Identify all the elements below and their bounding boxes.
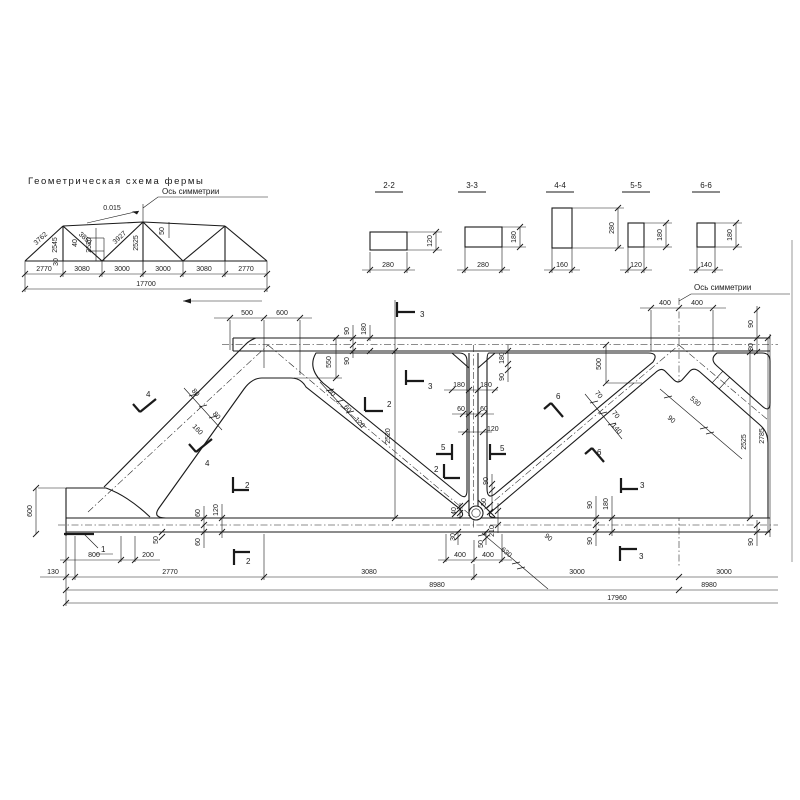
flag-2a: 2 [387, 400, 392, 409]
section-2-2-label: 2-2 [383, 181, 395, 190]
dim-gusset-500: 500 [596, 358, 603, 370]
scheme-slope-line [87, 211, 139, 223]
dim-600-left: 600 [27, 505, 34, 517]
section-5-5-label: 5-5 [630, 181, 642, 190]
dim-17960: 17960 [607, 595, 627, 602]
drawing-canvas: Геометрическая схема фермы Ось симметрии… [0, 0, 800, 800]
dim-n2-50: 50 [478, 540, 485, 548]
scheme-slope-arrow [132, 211, 139, 215]
section-5-5-shape [628, 223, 644, 247]
section-3-3: 3-3 280 180 [457, 181, 526, 273]
flag-2c: 2 [245, 481, 250, 490]
dim-500: 500 [241, 310, 253, 317]
dim-ed-80a: 80 [190, 388, 201, 399]
dim-right-90: 90 [748, 320, 755, 328]
scheme-span-6: 2770 [238, 266, 254, 273]
flag-6b: 6 [597, 448, 602, 457]
dim-bcr-180: 180 [603, 498, 610, 510]
flag-2b: 2 [434, 465, 439, 474]
cross-sections: 2-2 280 120 3-3 280 180 4-4 [362, 181, 742, 273]
node-hole-outer [469, 506, 483, 520]
scheme-span-3: 3000 [114, 266, 130, 273]
dim-200: 200 [142, 552, 154, 559]
dim-bcr-90a: 90 [587, 501, 594, 509]
section-5-5-width: 120 [630, 262, 642, 269]
section-2-2: 2-2 280 120 [362, 181, 442, 273]
dim-8980a: 8980 [429, 582, 445, 589]
dim-550: 550 [326, 356, 333, 368]
section-5-5: 5-5 120 180 [620, 181, 672, 273]
dim-400b: 400 [691, 300, 703, 307]
dim-top-left: 500 600 [183, 299, 312, 376]
dim-800: 800 [88, 552, 100, 559]
scheme-span-5: 3080 [196, 266, 212, 273]
dim-rows: 800 200 130 2770 3080 3000 3000 8980 898… [40, 534, 778, 606]
scheme-dim-40: 40 [72, 239, 79, 247]
scheme-span-2: 3080 [74, 266, 90, 273]
main-truss-view: Ось симметрии [27, 283, 790, 606]
dim-2520: 2520 [385, 428, 392, 444]
scheme-diag1-label: 3762 [33, 231, 49, 247]
geometric-scheme: Геометрическая схема фермы Ось симметрии… [22, 176, 270, 292]
node-1-label: 1 [101, 545, 106, 554]
dim-3000b: 3000 [716, 569, 732, 576]
dim-v-r90: 90 [499, 373, 506, 381]
dim-bcr-edge90: 90 [748, 538, 755, 546]
dim-v-r180: 180 [499, 352, 506, 364]
flag-3a: 3 [420, 310, 425, 319]
scheme-truss-lines [25, 222, 267, 261]
dim-8980b: 8980 [701, 582, 717, 589]
section-3-3-label: 3-3 [466, 181, 478, 190]
dim-v-b50: 50 [481, 498, 488, 506]
section-6-6: 6-6 140 180 [689, 181, 742, 273]
flag-4a: 4 [146, 390, 151, 399]
dim-bcl-120: 120 [213, 504, 220, 516]
flag-5a: 5 [441, 443, 446, 452]
flag-4b: 4 [205, 459, 210, 468]
truss-drawing-sheet: Геометрическая схема фермы Ось симметрии… [0, 0, 800, 800]
dim-bcl-60a: 60 [195, 509, 202, 517]
flag-3c: 3 [640, 481, 645, 490]
dim-bcr-90b: 90 [587, 537, 594, 545]
scheme-vert1-label: 2545 [52, 237, 59, 253]
dim-tc-90a: 90 [344, 327, 351, 335]
scheme-slope-label: 0.015 [103, 205, 121, 212]
dim-v-b90: 90 [483, 477, 490, 485]
dim-2785: 2785 [759, 428, 766, 444]
flag-2d: 2 [246, 557, 251, 566]
section-6-6-height: 180 [727, 229, 734, 241]
section-2-2-height: 120 [427, 235, 434, 247]
dim-v-120: 120 [487, 426, 499, 433]
dim-n2-90: 90 [543, 533, 554, 543]
section-4-4-shape [552, 208, 572, 248]
section-3-3-width: 280 [477, 262, 489, 269]
section-5-5-height: 180 [657, 229, 664, 241]
scheme-total-label: 17700 [136, 281, 156, 288]
scheme-vert2-label: 2520 [86, 237, 93, 253]
section-4-4: 4-4 160 280 [544, 181, 624, 273]
main-axis-label: Ось симметрии [694, 283, 751, 292]
section-2-2-shape [370, 232, 407, 250]
dim-v-60b: 60 [480, 406, 488, 413]
scheme-axis-label: Ось симметрии [162, 187, 219, 196]
flag-5b: 5 [500, 444, 505, 453]
section-4-4-label: 4-4 [554, 181, 566, 190]
dim-v-180a: 180 [453, 382, 465, 389]
scheme-vert3-label: 2525 [133, 235, 140, 251]
section-6-6-shape [697, 223, 715, 247]
flag-3b: 3 [428, 382, 433, 391]
truss-body [58, 334, 778, 537]
dim-n2-40: 40 [451, 507, 458, 515]
dim-bcl-60b: 60 [195, 538, 202, 546]
dim-n2-210: 210 [489, 525, 496, 537]
dim-2770: 2770 [162, 569, 178, 576]
section-4-4-height: 280 [609, 222, 616, 234]
dim-top-right: 400 400 90 80 [640, 300, 760, 355]
dim-2525: 2525 [741, 434, 748, 450]
section-3-3-shape [465, 227, 502, 247]
section-6-6-width: 140 [700, 262, 712, 269]
flag-3d: 3 [639, 552, 644, 561]
scheme-span-1: 2770 [36, 266, 52, 273]
dim-130: 130 [47, 569, 59, 576]
flag-6a: 6 [556, 392, 561, 401]
dim-left-end: 600 1 50 [27, 485, 165, 554]
dim-n2-400b: 400 [482, 552, 494, 559]
dim-v-180b: 180 [480, 382, 492, 389]
scheme-dim-50: 50 [159, 227, 166, 235]
dim-n2-30: 30 [450, 533, 457, 541]
section-3-3-height: 180 [511, 231, 518, 243]
section-6-6-label: 6-6 [700, 181, 712, 190]
scheme-axis-leader [143, 197, 268, 208]
dim-600: 600 [276, 310, 288, 317]
dim-plate-50: 50 [153, 536, 160, 544]
scheme-dim-30: 30 [53, 258, 60, 266]
dim-tc-180: 180 [361, 323, 368, 335]
dim-3000a: 3000 [569, 569, 585, 576]
scheme-small-dims [88, 222, 169, 261]
scheme-title: Геометрическая схема фермы [28, 176, 204, 187]
dim-v-60a: 60 [457, 406, 465, 413]
dim-3080: 3080 [361, 569, 377, 576]
section-4-4-width: 160 [556, 262, 568, 269]
section-2-2-width: 280 [382, 262, 394, 269]
dim-n2-400a: 400 [454, 552, 466, 559]
dim-ed-160: 160 [191, 423, 204, 436]
scheme-span-4: 3000 [155, 266, 171, 273]
dim-right-80: 80 [748, 343, 755, 351]
dim-400a: 400 [659, 300, 671, 307]
dim-tc-90b: 90 [344, 357, 351, 365]
